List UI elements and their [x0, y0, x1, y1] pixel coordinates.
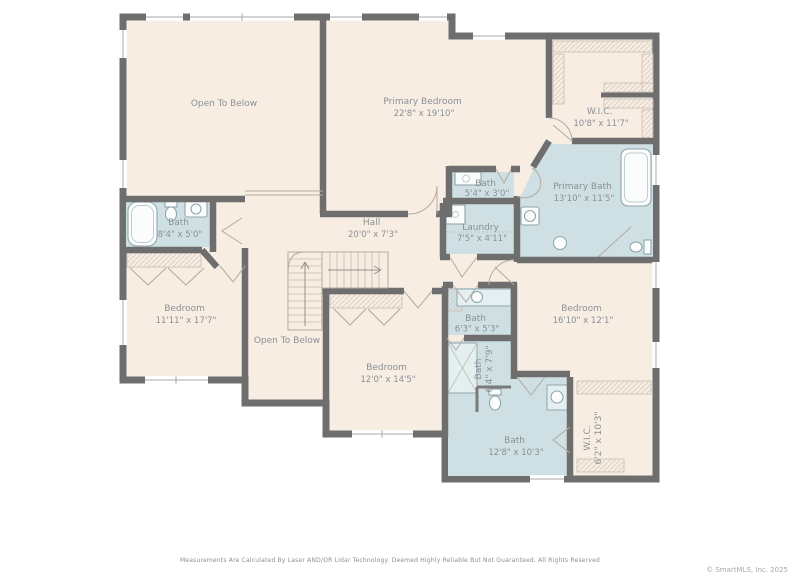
bathtub-icon [128, 202, 157, 246]
copyright-notice: © SmartMLS, Inc. 2025 [706, 566, 788, 574]
bath63-vanity-icon [457, 289, 511, 306]
primary-sink-2-icon [554, 237, 567, 250]
sink-icon [185, 201, 207, 217]
shower-icon [448, 343, 477, 393]
room-label-open-to-below-lower: Open To Below [254, 336, 320, 346]
room-label-laundry: Laundry 7'5" x 4'11" [457, 223, 507, 244]
room-label-bath-64-name: Bath [474, 359, 484, 380]
floor-plan-drawing: Open To Below Primary Bedroom 22'8" x 19… [0, 0, 800, 582]
room-label-wic-lower-name: W.I.C. [583, 425, 593, 450]
room-label-wic-lower-dims: 6'2" x 10'3" [594, 412, 604, 465]
primary-sink-1-icon [521, 207, 539, 225]
bath128-sink-icon [547, 385, 568, 410]
floor-plan-page: Open To Below Primary Bedroom 22'8" x 19… [0, 0, 800, 582]
measurement-disclaimer: Measurements Are Calculated By Laser AND… [0, 557, 780, 564]
primary-bathtub-icon [621, 149, 651, 206]
room-label-bath-64-dims: 6'4" x 7'9" [485, 345, 495, 392]
room-label-open-to-below-upper: Open To Below [191, 99, 257, 109]
